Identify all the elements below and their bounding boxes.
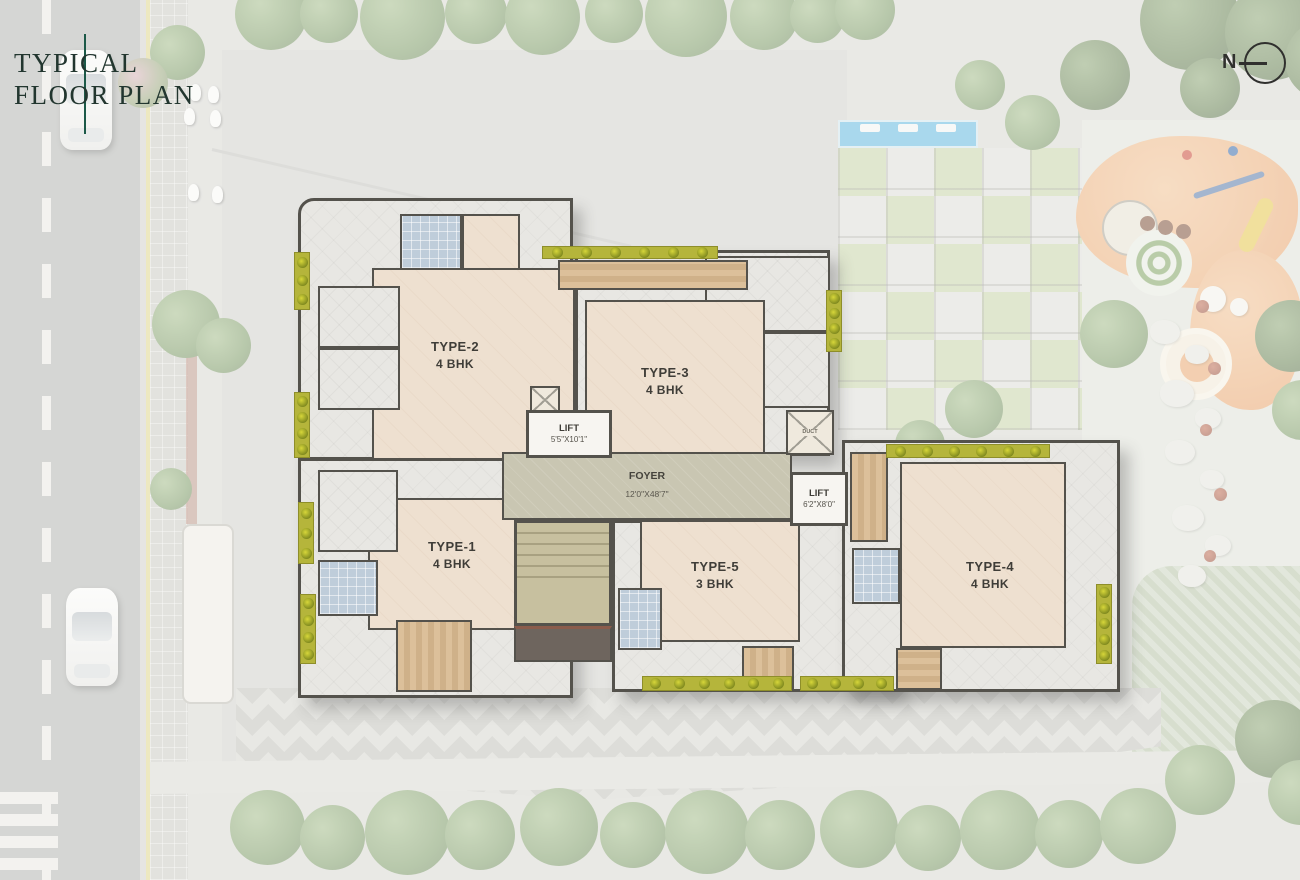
plant-icon (1099, 634, 1110, 645)
plant-icon (829, 338, 840, 349)
foyer-label-group: FOYER 12'0"X48'7" (502, 470, 792, 502)
lift-2-label: LIFT (809, 488, 829, 500)
balcony-deck (850, 452, 888, 542)
bathroom (852, 548, 900, 604)
balcony-deck (396, 620, 472, 692)
plant-icon (922, 446, 933, 457)
plant-icon (297, 396, 308, 407)
plant-icon (639, 247, 650, 258)
planter (886, 444, 1050, 458)
type4-living-area (900, 462, 1066, 648)
north-label: N (1222, 52, 1236, 72)
balcony-deck (896, 648, 942, 690)
plant-icon (773, 678, 784, 689)
unit-label-type-3: TYPE-3 4 BHK (595, 364, 735, 398)
plant-icon (303, 649, 314, 660)
foyer-label: FOYER (502, 470, 792, 484)
unit-label-type-5: TYPE-5 3 BHK (645, 558, 785, 592)
planter (298, 502, 314, 564)
plant-icon (581, 247, 592, 258)
unit-name: TYPE-3 (595, 364, 735, 382)
plant-icon (303, 598, 314, 609)
plant-icon (297, 294, 308, 305)
planter (542, 246, 718, 259)
unit-bhk: 4 BHK (382, 556, 522, 572)
plant-icon (876, 678, 887, 689)
plant-icon (297, 412, 308, 423)
planter (642, 676, 792, 691)
plant-icon (829, 293, 840, 304)
unit-bhk: 4 BHK (920, 576, 1060, 592)
planter (300, 594, 316, 664)
plant-icon (829, 323, 840, 334)
plant-icon (301, 528, 312, 539)
plant-icon (830, 678, 841, 689)
foyer-size: 12'0"X48'7" (625, 489, 668, 499)
plant-icon (552, 247, 563, 258)
bathroom (618, 588, 662, 650)
bathroom (400, 214, 462, 270)
planter (1096, 584, 1112, 664)
plant-icon (1030, 446, 1041, 457)
staircase (514, 520, 612, 626)
plant-icon (301, 508, 312, 519)
unit-name: TYPE-5 (645, 558, 785, 576)
title-line-1: TYPICAL (14, 48, 195, 80)
plant-icon (297, 428, 308, 439)
unit-bhk: 4 BHK (385, 356, 525, 372)
unit-name: TYPE-4 (920, 558, 1060, 576)
unit-label-type-2: TYPE-2 4 BHK (385, 338, 525, 372)
plant-icon (949, 446, 960, 457)
lift-1-label: LIFT (559, 423, 579, 435)
north-indicator: N (1222, 42, 1300, 88)
duct-shaft: DUCT (786, 410, 834, 455)
lift-1: LIFT 5'5"X10'1" (526, 410, 612, 458)
plant-icon (297, 444, 308, 455)
plant-icon (1099, 587, 1110, 598)
stair-landing (514, 626, 612, 662)
plant-icon (303, 632, 314, 643)
bedroom (462, 214, 520, 270)
compass-ring-icon (1244, 42, 1286, 84)
plant-icon (895, 446, 906, 457)
planter (294, 252, 310, 310)
bathroom (318, 560, 378, 616)
unit-bhk: 4 BHK (595, 382, 735, 398)
title-line-2: FLOOR PLAN (14, 80, 195, 112)
planter (826, 290, 842, 352)
plant-icon (976, 446, 987, 457)
plant-icon (610, 247, 621, 258)
plant-icon (829, 308, 840, 319)
plant-icon (1099, 603, 1110, 614)
typical-floor-plan-image: LIFT 5'5"X10'1" DUCT FOYER 12'0"X48'7" (0, 0, 1300, 880)
plant-icon (699, 678, 710, 689)
plant-icon (853, 678, 864, 689)
plant-icon (807, 678, 818, 689)
plant-icon (1003, 446, 1014, 457)
unit-bhk: 3 BHK (645, 576, 785, 592)
unit-name: TYPE-2 (385, 338, 525, 356)
plant-icon (668, 247, 679, 258)
plant-icon (1099, 650, 1110, 661)
unit-name: TYPE-1 (382, 538, 522, 556)
plant-icon (748, 678, 759, 689)
plant-icon (301, 548, 312, 559)
plant-icon (1099, 618, 1110, 629)
lift-2-size: 6'2"X8'0" (803, 500, 835, 510)
lift-2: LIFT 6'2"X8'0" (790, 472, 848, 526)
building-floor-plan: LIFT 5'5"X10'1" DUCT FOYER 12'0"X48'7" (288, 186, 1124, 702)
plant-icon (724, 678, 735, 689)
page-title: TYPICAL FLOOR PLAN (14, 48, 195, 112)
balcony-deck (558, 260, 748, 290)
unit-label-type-1: TYPE-1 4 BHK (382, 538, 522, 572)
plant-icon (650, 678, 661, 689)
duct-label: DUCT (800, 429, 819, 437)
unit-label-type-4: TYPE-4 4 BHK (920, 558, 1060, 592)
plant-icon (297, 275, 308, 286)
plant-icon (303, 615, 314, 626)
planter (294, 392, 310, 458)
plant-icon (674, 678, 685, 689)
lift-1-size: 5'5"X10'1" (551, 435, 587, 445)
plant-icon (297, 257, 308, 268)
planter (800, 676, 894, 691)
plant-icon (697, 247, 708, 258)
